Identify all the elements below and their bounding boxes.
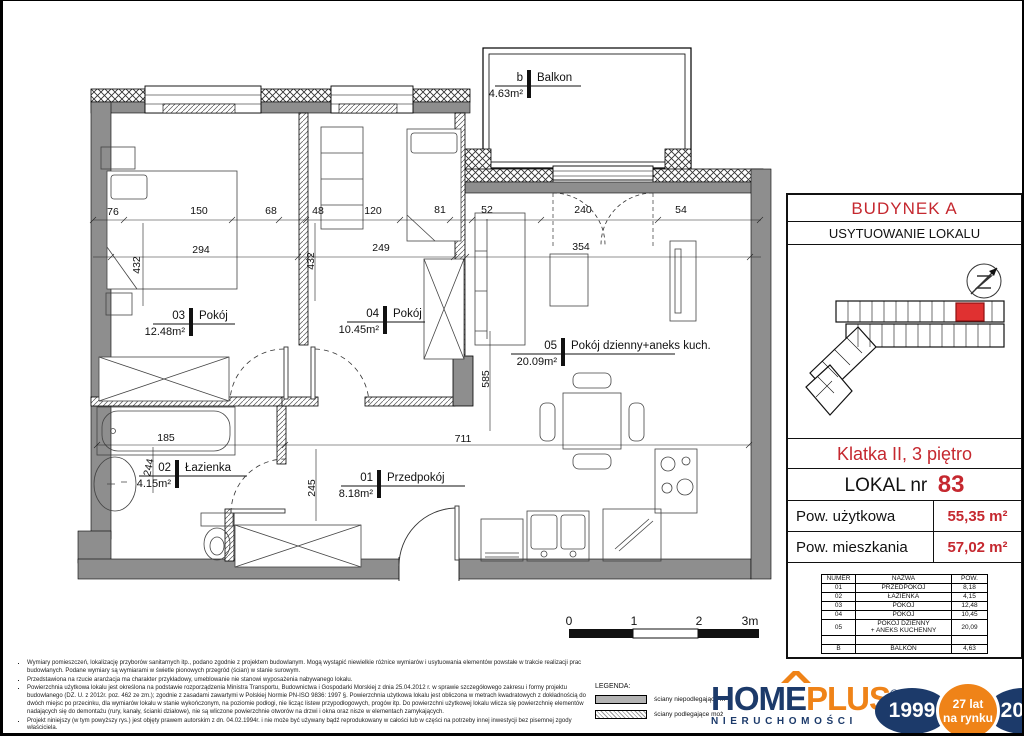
dimension-label: 249: [372, 242, 390, 254]
footnote: Powierzchnia użytkowa lokalu jest określ…: [27, 685, 590, 716]
room-area: 10.45m²: [339, 324, 380, 336]
building-outline: [806, 301, 1004, 415]
scale-label: 0: [566, 614, 573, 628]
rooms-table-cell: [952, 635, 988, 644]
logo-wordmark: HOMEPLUS®: [711, 682, 901, 715]
area-usable-label: Pow. użytkowa: [788, 501, 934, 531]
lokal-number: 83: [938, 471, 965, 498]
rooms-table-cell: 04: [822, 611, 856, 620]
floor-info: Klatka II, 3 piętro: [788, 439, 1021, 469]
room-label-tick: [527, 70, 531, 98]
area-usable-value: 55,35 m²: [934, 501, 1021, 531]
badge-anniversary: 27 lat na rynku: [936, 681, 1000, 736]
footnote: Przedstawiona na rzucie aranżacja ma cha…: [27, 677, 590, 685]
lokal-row: LOKAL nr 83: [788, 469, 1021, 501]
lokal-label: LOKAL nr: [845, 475, 928, 496]
dimension-label: 294: [192, 244, 210, 256]
scale-bar: 0123m: [566, 614, 759, 638]
rooms-table-row: 02ŁAZIENKA4,15: [822, 593, 988, 602]
room-area: 4.15m²: [137, 478, 172, 490]
rooms-table-cell: 4,15: [952, 593, 988, 602]
footnote: Wymiary pomieszczeń, lokalizację przybor…: [27, 660, 590, 676]
dimension-label: 240: [574, 204, 592, 216]
solid-wall-swatch: [595, 695, 647, 704]
rooms-table-cell: POKÓJ DZIENNY + ANEKS KUCHENNY: [856, 620, 952, 636]
site-plan-svg: [788, 245, 1021, 439]
hatched-wall-swatch: [595, 710, 647, 719]
rooms-table-cell: 05: [822, 620, 856, 636]
dimension-label: 120: [364, 205, 382, 217]
unit-info-panel: BUDYNEK A USYTUOWANIE LOKALU: [786, 193, 1023, 659]
location-title: USYTUOWANIE LOKALU: [788, 222, 1021, 245]
rooms-table-cell: B: [822, 644, 856, 653]
compass-icon: [967, 264, 1001, 298]
footnotes-list: Wymiary pomieszczeń, lokalizację przybor…: [13, 660, 590, 734]
room-area: 8.18m²: [339, 488, 374, 500]
rooms-table-cell: POKÓJ: [856, 611, 952, 620]
footnote: Projekt niniejszy (w tym powyższy rys.) …: [27, 718, 590, 734]
dimension-label: 76: [107, 206, 119, 218]
area-row-usable: Pow. użytkowa 55,35 m²: [788, 501, 1021, 532]
logo-home-text: HOM: [711, 680, 785, 717]
rooms-table-cell: 01: [822, 584, 856, 593]
rooms-table-cell: 8,18: [952, 584, 988, 593]
room-number: 05: [544, 340, 557, 352]
homeplus-logo: HOMEPLUS® NIERUCHOMOŚCI: [711, 682, 901, 727]
dimension-label: 432: [131, 256, 143, 274]
rooms-table-cell: 20,09: [952, 620, 988, 636]
rooms-table-header: POW.: [952, 575, 988, 584]
rooms-table-cell: [856, 635, 952, 644]
rooms-table-wrap: NUMERNAZWAPOW. 01PRZEDPOKÓJ8,1802ŁAZIENK…: [788, 563, 1021, 657]
room-number: b: [517, 72, 523, 84]
area-dwelling-value: 57,02 m²: [934, 532, 1021, 562]
rooms-table-cell: ŁAZIENKA: [856, 593, 952, 602]
logo-e-with-roof: E: [785, 682, 806, 715]
rooms-table-header: NAZWA: [856, 575, 952, 584]
room-label-tick: [377, 470, 381, 498]
floor-plan-svg: 0123m 7615068481208152240542942493544324…: [3, 1, 783, 661]
room-name: Pokój: [199, 310, 228, 322]
room-name: Łazienka: [185, 462, 232, 474]
rooms-table-row: 04POKÓJ10,45: [822, 611, 988, 620]
room-number: 01: [360, 472, 373, 484]
dimension-label: 432: [305, 252, 317, 270]
rooms-table-row: 01PRZEDPOKÓJ8,18: [822, 584, 988, 593]
room-name: Pokój dzienny+aneks kuch.: [571, 340, 711, 352]
rooms-table-cell: 4,63: [952, 644, 988, 653]
rooms-table-cell: 03: [822, 602, 856, 611]
dimension-label: 81: [434, 204, 446, 216]
room-label-tick: [383, 306, 387, 334]
dimension-label: 150: [190, 205, 208, 217]
room-label-tick: [561, 338, 565, 366]
rooms-table: NUMERNAZWAPOW. 01PRZEDPOKÓJ8,1802ŁAZIENK…: [821, 574, 988, 654]
logo-subtitle: NIERUCHOMOŚCI: [711, 716, 901, 727]
room-area: 12.48m²: [145, 326, 186, 338]
dimension-label: 354: [572, 241, 590, 253]
dimension-label: 185: [157, 432, 175, 444]
dimension-label: 48: [312, 205, 324, 217]
scale-label: 2: [696, 614, 703, 628]
room-number: 02: [158, 462, 171, 474]
room-name: Pokój: [393, 308, 422, 320]
dimension-label: 68: [265, 205, 277, 217]
room-name: Przedpokój: [387, 472, 445, 484]
rooms-table-row: 05POKÓJ DZIENNY + ANEKS KUCHENNY20,09: [822, 620, 988, 636]
highlighted-unit: [956, 303, 984, 321]
rooms-table-row: BBALKON4,63: [822, 644, 988, 653]
scale-label: 3m: [742, 614, 759, 628]
area-row-dwelling: Pow. mieszkania 57,02 m²: [788, 532, 1021, 563]
scale-label: 1: [631, 614, 638, 628]
rooms-table-cell: PRZEDPOKÓJ: [856, 584, 952, 593]
rooms-table-cell: 12,48: [952, 602, 988, 611]
room-number: 03: [172, 310, 185, 322]
rooms-table-cell: 10,45: [952, 611, 988, 620]
area-dwelling-label: Pow. mieszkania: [788, 532, 934, 562]
dimension-label: 585: [480, 370, 492, 388]
room-label-tick: [175, 460, 179, 488]
room-area: 20.09m²: [517, 356, 558, 368]
dimension-label: 244: [141, 457, 156, 477]
rooms-table-cell: POKÓJ: [856, 602, 952, 611]
room-label-tick: [189, 308, 193, 336]
building-title: BUDYNEK A: [788, 195, 1021, 222]
dimension-label: 245: [306, 479, 318, 497]
rooms-table-cell: [822, 635, 856, 644]
rooms-table-header: NUMER: [822, 575, 856, 584]
dimension-label: 711: [455, 433, 472, 445]
room-area: 4.63m²: [489, 88, 524, 100]
room-name: Balkon: [537, 72, 572, 84]
room-number: 04: [366, 308, 379, 320]
floorplan-sheet: 0123m 7615068481208152240542942493544324…: [0, 0, 1024, 736]
dimension-label: 52: [481, 204, 493, 216]
dimension-label: 54: [675, 204, 687, 216]
rooms-table-cell: 02: [822, 593, 856, 602]
rooms-table-row: [822, 635, 988, 644]
roof-icon: [781, 670, 811, 684]
anniversary-badges: 1999 27 lat na rynku 2026: [875, 683, 1024, 736]
rooms-table-row: 03POKÓJ12,48: [822, 602, 988, 611]
site-plan: [788, 245, 1021, 439]
rooms-table-cell: BALKON: [856, 644, 952, 653]
